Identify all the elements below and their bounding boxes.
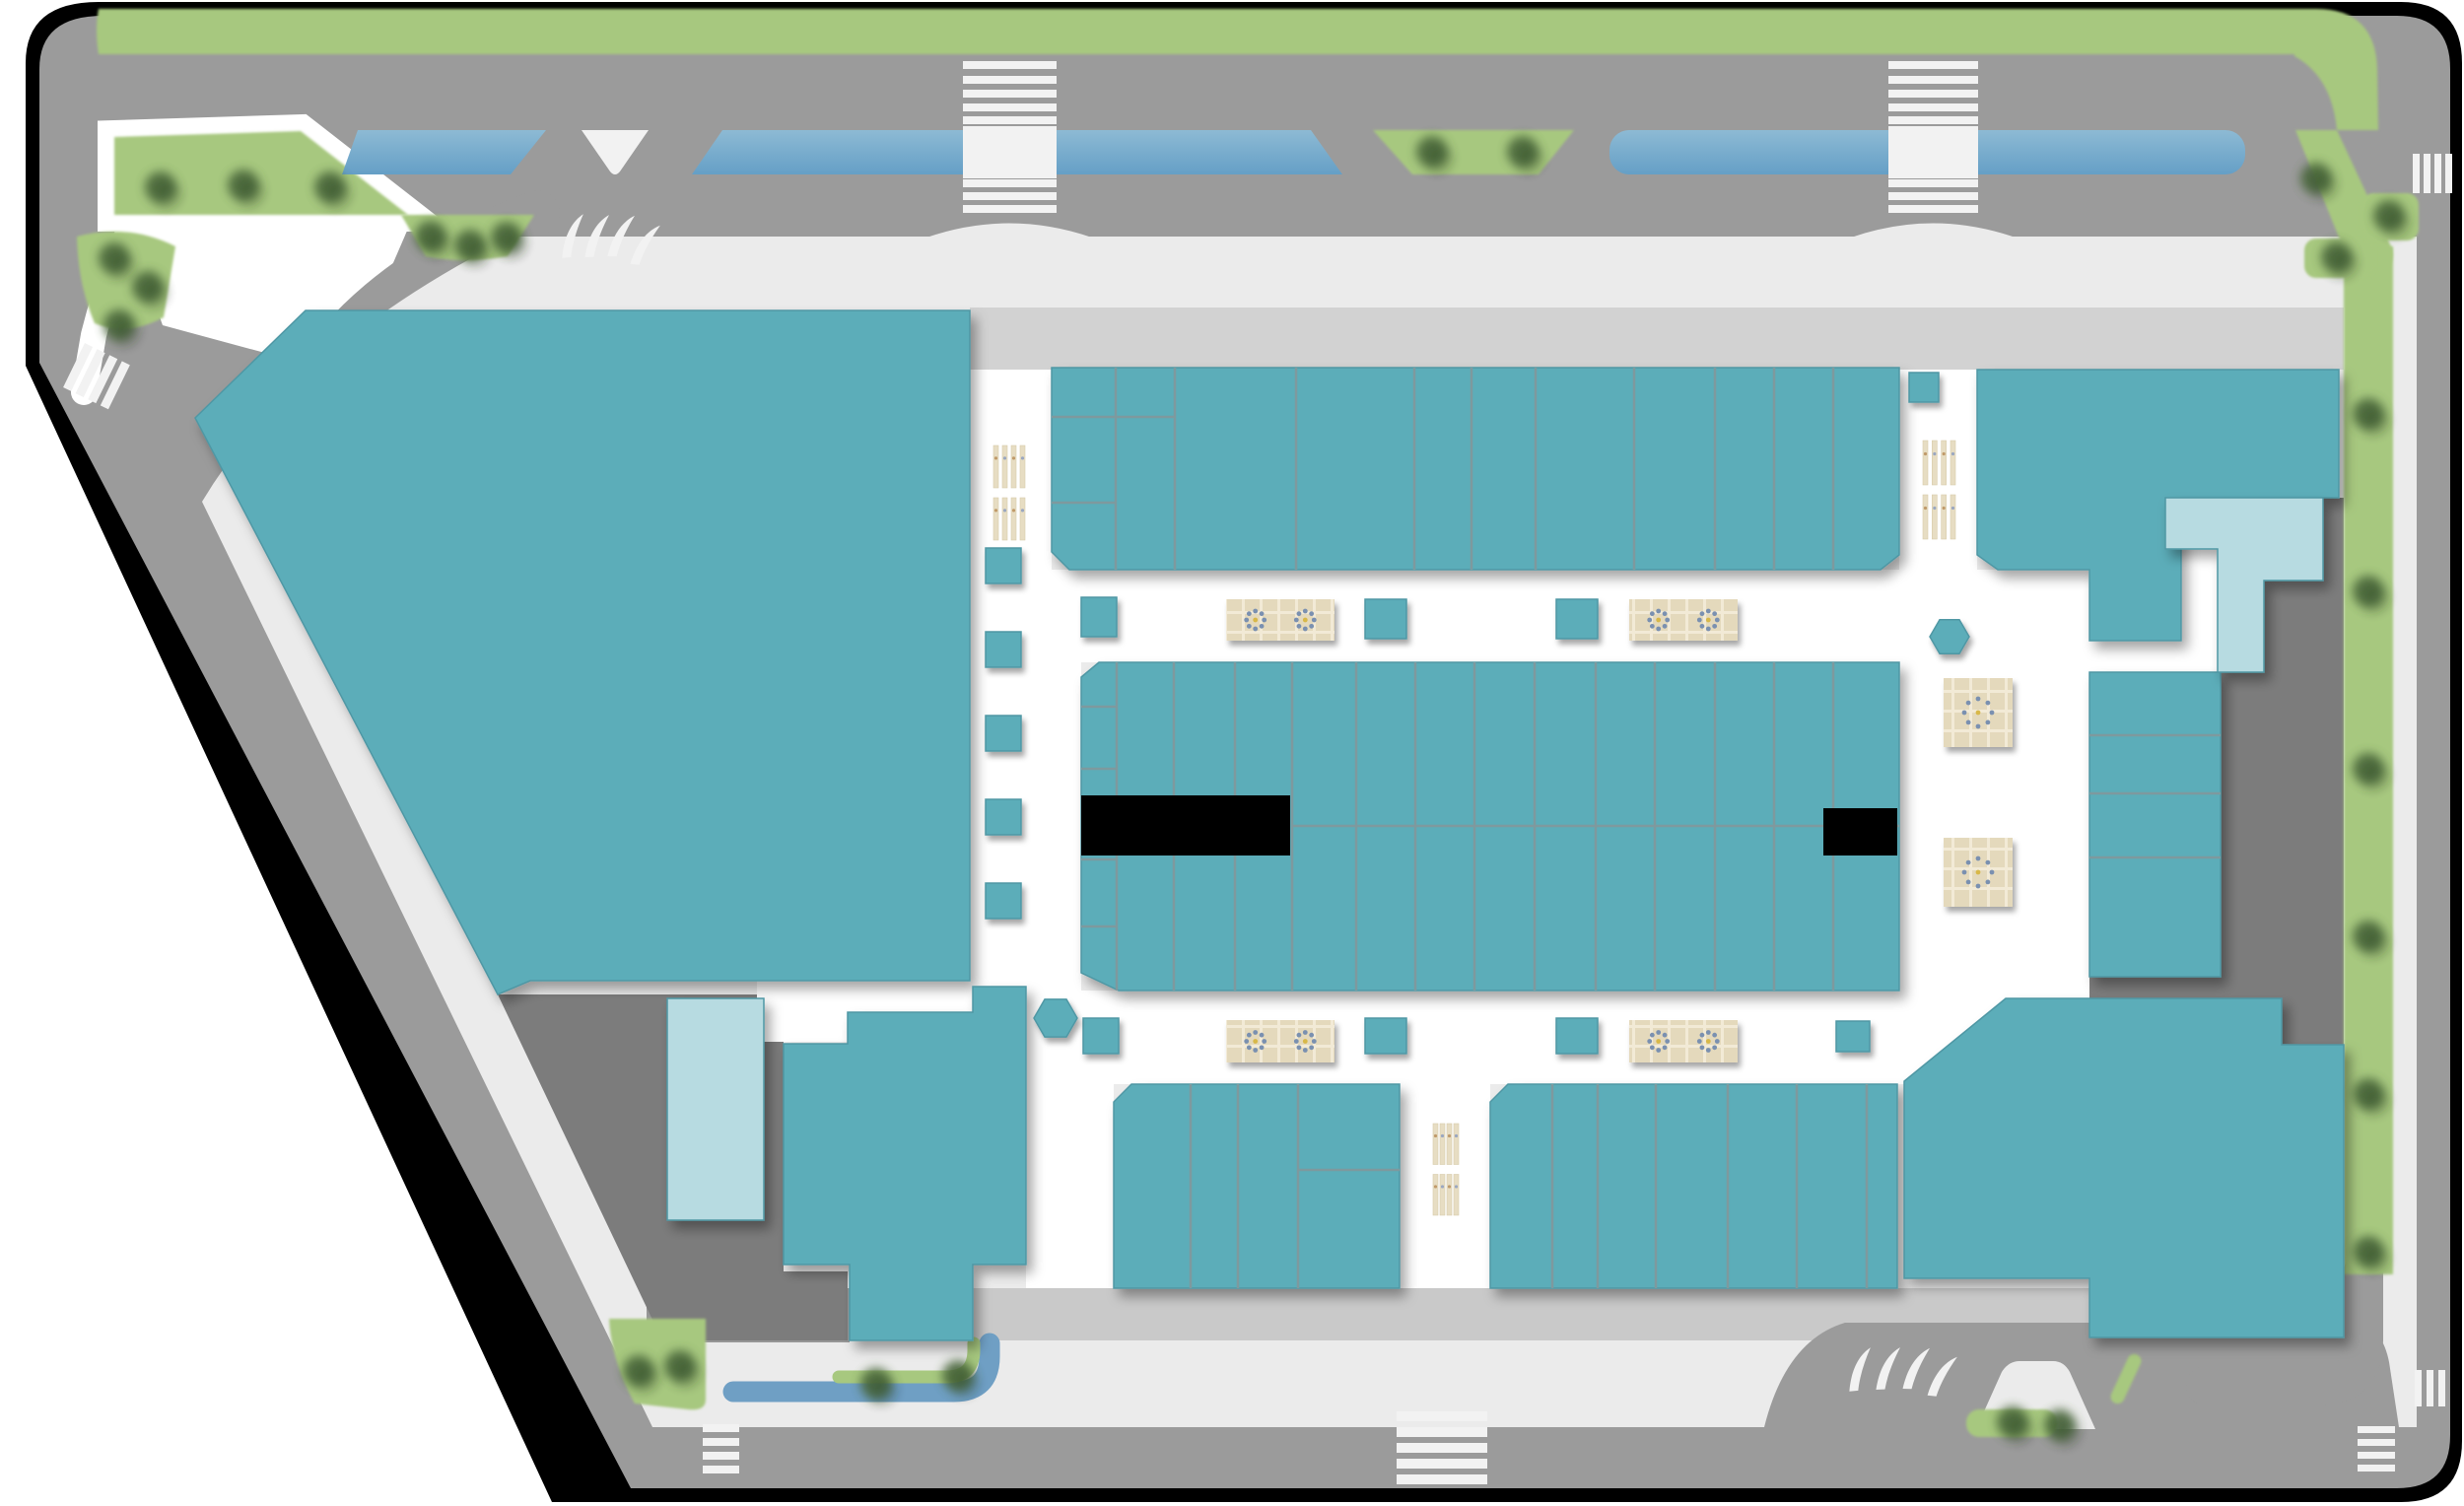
mat-dot [1312,1039,1317,1044]
mat-dot [1663,624,1668,629]
crosswalk-north-a-stripe [963,76,1057,84]
paver-mat [1629,1020,1738,1062]
mat-dot [1262,1039,1266,1044]
bench-strip [1433,1124,1438,1165]
mat-dot [1247,1045,1252,1050]
mat-dot-accent [1976,870,1981,875]
bench-strip [1932,495,1937,539]
mat-dot [1706,627,1711,632]
bench-dot [1441,1134,1444,1137]
mat-dot [1697,618,1702,623]
bench-dot [1434,1185,1437,1188]
mall-map-canvas [0,0,2464,1506]
kiosk [1081,597,1117,637]
tree-canopy-core [2362,1087,2382,1107]
mat-dot [1297,611,1302,616]
crosswalk-north-b-stripe [1888,61,1978,69]
crosswalk-east-bottom-stripe [2438,1370,2445,1406]
bench-dot [1943,507,1946,510]
tree-canopy-core [155,180,174,200]
service-yard-east-low [2282,998,2344,1045]
bench-dot [1448,1185,1451,1188]
crosswalk-east-bottom [2415,1370,2445,1406]
tree-canopy-core [870,1377,890,1397]
tree-canopy-core [2362,584,2382,604]
mat-dot [1253,627,1258,632]
bench-strip [1020,498,1025,540]
mat-dot [1260,1033,1265,1038]
mat-dot-accent [1656,1039,1661,1044]
mat-dot [1247,1033,1252,1038]
crosswalk-north-a-stripe [963,192,1057,200]
bench-strip [1447,1175,1452,1216]
mat-dot [1712,1033,1717,1038]
bench-strip [993,445,998,488]
crosswalk-north-a-stripe [963,90,1057,98]
bench-dot [1951,507,1954,510]
crosswalk-south-corner-stripe [2358,1426,2395,1433]
mat-dot [1656,1048,1661,1053]
paver-mat-base [1226,1020,1335,1062]
bench-dot [1933,452,1936,455]
kiosk [986,799,1021,835]
tree-canopy-core [2331,250,2351,270]
kiosk [1556,1018,1598,1054]
future-tenant-southwest [667,998,764,1220]
mat-dot [1656,1030,1661,1035]
kiosk [1365,1018,1406,1054]
crosswalk-east-top-stripe [2413,154,2420,193]
bench-dot [994,509,997,512]
bench-dot [1012,509,1015,512]
mat-dot-accent [1303,618,1308,623]
bench-dot [1021,456,1024,459]
crosswalk-south-left-stripe [703,1452,739,1460]
mall-site-plan [0,0,2464,1506]
bench-dot [994,456,997,459]
crosswalk-east-top-stripe [2434,154,2441,193]
paver-mat-base [1226,599,1335,641]
tree-canopy-core [2383,209,2403,229]
mat-dot [1309,1033,1314,1038]
crosswalk-north-a-stripe [963,116,1057,124]
paver-mat [1226,599,1335,641]
mat-dot-accent [1656,618,1661,623]
mat-dot [1976,697,1981,702]
mat-dot [1966,879,1971,884]
bench-strip [1002,498,1007,540]
crosswalk-north-a-stripe [963,61,1057,69]
crosswalk-b-block [1888,126,1978,178]
tree-canopy-core [633,1364,652,1384]
tree-canopy-core [324,180,344,200]
mat-dot [1247,611,1252,616]
paver-mat [1629,599,1738,641]
mat-dot [1303,627,1308,632]
bench-strip [1440,1175,1445,1216]
mat-dot [1650,1033,1655,1038]
mat-dot [1309,624,1314,629]
tree-canopy-core [2362,407,2382,427]
tree-canopy-core [2362,929,2382,949]
mat-dot [1665,1039,1670,1044]
crosswalk-south-center-stripe [1397,1443,1487,1453]
store-row-south-west [1114,1084,1400,1288]
promenade-upper [1052,570,1899,662]
bench-strip [1942,441,1947,485]
paver-mat [1226,1020,1335,1062]
mat-dot [1663,1033,1668,1038]
mat-dot-accent [1706,1039,1711,1044]
mat-dot [1985,879,1990,884]
mat-dot [1985,701,1990,706]
bench-strip [1951,441,1955,485]
kiosk [1836,1021,1870,1052]
paver-mat-base [1629,1020,1738,1062]
mat-dot [1647,1039,1652,1044]
bench-dot [1003,456,1006,459]
mat-dot [1650,624,1655,629]
mat-dot [1650,1045,1655,1050]
crosswalk-north-a-stripe [963,179,1057,187]
tree-canopy-core [238,178,257,198]
kiosk [986,716,1021,751]
bench-dot [1448,1134,1451,1137]
bench-strip [1454,1175,1459,1216]
tree-canopy-core [464,239,484,258]
crosswalk-a-block [963,126,1057,178]
store-column-east [2089,672,2221,977]
bench-dot [1951,452,1954,455]
mat-dot [1253,1048,1258,1053]
mat-dot-accent [1253,618,1258,623]
crosswalk-south-center-stripe [1397,1427,1487,1437]
bench-dot [1003,509,1006,512]
mat-dot [1247,624,1252,629]
crosswalk-east-bottom-stripe [2427,1370,2433,1406]
mat-dot [1700,1033,1705,1038]
mat-dot [1665,618,1670,623]
mat-dot [1697,1039,1702,1044]
tree-canopy-core [108,251,128,271]
crosswalk-east-top-stripe [2424,154,2430,193]
kiosk [1365,599,1406,639]
tree-canopy-core [952,1369,972,1389]
kiosk [986,548,1021,583]
bench-strip [1433,1175,1438,1216]
kiosk [1083,1018,1119,1054]
crosswalk-north-b-stripe [1888,179,1978,187]
crosswalk-south-left-stripe [703,1438,739,1446]
bus-lane-1 [342,130,546,174]
tree-canopy-core [1517,145,1537,165]
tree-canopy-core [2362,1245,2382,1265]
crosswalk-south-center-stripe [1397,1474,1487,1484]
bench-dot [1924,507,1927,510]
mat-dot [1985,860,1990,865]
mat-dot [1309,611,1314,616]
crosswalk-south-corner-stripe [2358,1439,2395,1446]
bench-strip [1447,1124,1452,1165]
mat-dot-accent [1303,1039,1308,1044]
kiosk [1556,599,1598,639]
bench-dot [1943,452,1946,455]
mat-dot [1309,1045,1314,1050]
kiosk [1909,373,1939,402]
mat-dot [1712,1045,1717,1050]
tree-canopy-core [2054,1418,2074,1438]
mat-dot [1700,611,1705,616]
crosswalk-south-corner-stripe [2358,1465,2395,1472]
mat-dot [1976,724,1981,729]
mat-dot [1715,1039,1720,1044]
mat-dot [1303,609,1308,614]
mat-dot [1985,719,1990,724]
kiosk [986,883,1021,919]
mat-dot [1966,719,1971,724]
crosswalk-north-b-stripe [1888,116,1978,124]
mat-dot [1706,1048,1711,1053]
crosswalk-east-top-stripe [2445,154,2452,193]
mat-dot [1260,1045,1265,1050]
crosswalk-south-center-stripe [1397,1459,1487,1469]
bench-strip [1011,498,1016,540]
mat-dot [1962,711,1967,716]
store-row-north [1052,368,1899,570]
bench-strip [1951,495,1955,539]
bench-strip [1440,1124,1445,1165]
bench-dot [1924,452,1927,455]
bench-strip [1932,441,1937,485]
mat-dot [1700,1045,1705,1050]
mat-dot-accent [1253,1039,1258,1044]
bench-strip [1454,1124,1459,1165]
tree-canopy-core [2007,1415,2026,1435]
mat-dot [1303,1048,1308,1053]
kiosk [986,632,1021,667]
mat-dot [1656,627,1661,632]
map-layers [26,2,2462,1502]
mat-dot [1260,611,1265,616]
mat-dot-accent [1706,618,1711,623]
mat-dot [1244,618,1249,623]
mat-dot [1966,860,1971,865]
tree-canopy-core [142,280,162,300]
tree-canopy-core [674,1359,694,1379]
mat-dot [1262,618,1266,623]
mat-dot [1712,611,1717,616]
crosswalk-south-left-stripe [703,1424,739,1432]
bench-strip [1942,495,1947,539]
mat-dot [1706,609,1711,614]
paver-mat-base [1629,599,1738,641]
walkway-left [970,370,1052,570]
mat-dot [1650,611,1655,616]
paver-mat [1944,678,2013,747]
mat-dot [1976,856,1981,861]
crosswalk-north-b-stripe [1888,205,1978,213]
bench-dot [1455,1185,1458,1188]
mat-dot [1253,1030,1258,1035]
mat-dot [1647,618,1652,623]
mat-dot [1663,1045,1668,1050]
crosswalk-south-corner-stripe [2358,1452,2395,1459]
crosswalk-south-center-stripe [1397,1411,1487,1421]
mat-dot [1312,618,1317,623]
bench-strip [1923,441,1928,485]
walkway-east-wing [1899,570,2089,998]
bench-strip [1923,495,1928,539]
mat-dot [1656,609,1661,614]
tree-canopy-core [2310,171,2330,191]
mat-dot [1990,711,1995,716]
bench-strip [993,498,998,540]
crosswalk-north-b-stripe [1888,76,1978,84]
mat-dot [1966,701,1971,706]
mat-dot-accent [1976,711,1981,716]
tree-canopy-core [501,231,520,250]
paver-mat [1944,838,2013,907]
mat-dot [1715,618,1720,623]
crosswalk-north-b-stripe [1888,192,1978,200]
mat-dot [1700,624,1705,629]
mat-dot [1253,609,1258,614]
closed-unit-large [1081,795,1290,856]
mat-dot [1706,1030,1711,1035]
mat-dot [1294,618,1299,623]
bench-strip [1011,445,1016,488]
strip-above-north-row [970,308,2344,370]
crosswalk-east-bottom-stripe [2415,1370,2422,1406]
tree-canopy-core [113,318,133,338]
tree-canopy-core [2362,762,2382,782]
mat-dot [1663,611,1668,616]
mat-dot [1260,624,1265,629]
mat-dot [1244,1039,1249,1044]
mat-dot [1294,1039,1299,1044]
crosswalk-north-b-stripe [1888,90,1978,98]
closed-unit-small [1823,808,1897,856]
tree-canopy-core [1426,145,1446,165]
mat-dot [1990,870,1995,875]
mat-dot [1297,1045,1302,1050]
bench-strip [1020,445,1025,488]
bench-dot [1021,509,1024,512]
mat-dot [1976,884,1981,889]
mat-dot [1297,624,1302,629]
mat-dot [1962,870,1967,875]
mat-dot [1297,1033,1302,1038]
bench-dot [1434,1134,1437,1137]
tree-canopy-core [425,230,445,249]
bench-dot [1933,507,1936,510]
crosswalk-south-left-stripe [703,1466,739,1473]
service-yard-east-band [2089,977,2181,998]
mat-dot [1303,1030,1308,1035]
mat-dot [1712,624,1717,629]
crosswalk-north-b-stripe [1888,103,1978,111]
bench-dot [1012,456,1015,459]
crosswalk-north-a-stripe [963,103,1057,111]
crosswalk-north-a-stripe [963,205,1057,213]
bench-strip [1002,445,1007,488]
bench-dot [1441,1185,1444,1188]
bench-dot [1455,1134,1458,1137]
